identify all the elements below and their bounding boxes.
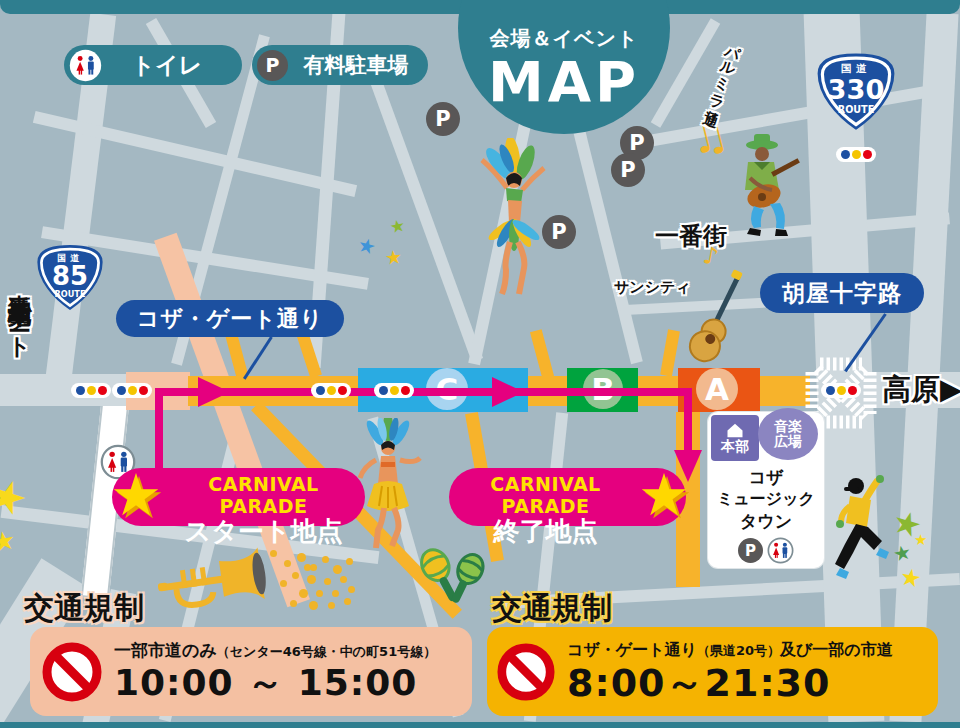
restricted-roads: コザ・ゲート通り [567,640,697,659]
pointer-line [243,336,273,380]
trumpet-illustration [152,544,275,621]
traffic-restriction-heading-left: 交通規制 [24,588,144,629]
koza-gate-street-text: コザ・ゲート通り [137,304,324,334]
hq-label: 本部 [721,438,749,454]
confetti [270,550,277,557]
zone-b-label: B [591,371,615,407]
zone-b-marker: B [583,369,623,409]
route-sign-number: 330 [828,74,885,105]
map-title: MAP [488,52,640,112]
traffic-light-icon [836,147,876,162]
traffic-light-icon [71,383,111,398]
restriction-hours: 10:00 ～ 15:00 [114,662,436,704]
toilet-icon [767,537,794,564]
toilet-icon [69,49,102,82]
traffic-light-icon [374,383,414,398]
traffic-restriction-left: 一部市道のみ（センター46号線・中の町51号線） 10:00 ～ 15:00 [30,627,472,716]
parking-marker: P [426,102,460,136]
music-town-name: コザ ミュージック タウン [708,466,824,532]
zone-a-marker: A [696,368,738,410]
restricted-roads-note: （センター46号線・中の町51号線） [217,644,436,659]
restriction-hours: 8:00～21:30 [567,661,893,705]
gold-street [530,329,554,378]
goya-crossing-text: 胡屋十字路 [782,278,902,309]
legend-toilet-label: トイレ [102,50,232,81]
jumping-dancer-illustration [828,472,910,580]
no-entry-icon [497,643,555,701]
street-label-suncity: サンシティ [614,278,691,297]
star-icon: ★ [638,466,690,524]
street [889,13,958,723]
route-sign-suffix: ROUTE [55,289,86,299]
music-town-name-line3: タウン [708,510,824,532]
arrow-right-icon: ▶ [940,372,960,406]
goya-crossing-label: 胡屋十字路 [760,273,924,313]
zone-c-marker: C [426,368,468,410]
street-label-kadena-gate: 嘉手納基地第二ゲート [5,276,36,516]
restricted-roads-note: （県道20号） [697,643,780,658]
traffic-restriction-left-text: 一部市道のみ（センター46号線・中の町51号線） 10:00 ～ 15:00 [114,640,436,704]
route-330-sign: 国道 330 ROUTE [816,52,896,130]
legend-paid-parking-label: 有料駐車場 [288,51,424,79]
parking-icon: P [738,538,763,563]
star-icon: ★ [356,234,378,258]
music-plaza-badge: 音楽 広場 [758,408,818,460]
hq-badge: 本部 [711,415,759,461]
star-icon: ★ [384,247,403,268]
traffic-restriction-right: コザ・ゲート通り（県道20号）及び一部の市道 8:00～21:30 [487,627,938,716]
parade-title: CARNIVAL PARADE [457,473,634,517]
traffic-restriction-right-text: コザ・ゲート通り（県道20号）及び一部の市道 8:00～21:30 [567,639,893,705]
bottom-band [0,722,960,728]
music-town-name-line1: コザ [708,466,824,488]
music-plaza-line1: 音楽 [774,419,802,434]
traffic-light-icon [311,383,351,398]
route-sign-number: 85 [52,261,88,291]
parade-end-banner: ★ CARNIVAL PARADE 終了地点 [449,468,686,526]
traffic-light-icon [112,383,152,398]
traffic-restriction-heading-right: 交通規制 [492,588,612,629]
parking-letter: P [435,107,450,131]
star-icon: ★ [0,526,17,556]
guitarist-illustration [724,128,816,243]
music-plaza-line2: 広場 [774,434,802,449]
route-sign-suffix: ROUTE [838,104,874,115]
parking-letter: P [745,542,756,560]
gold-street [660,329,680,376]
music-town-name-line2: ミュージック [708,488,824,510]
restricted-roads-tail: 及び一部の市道 [780,640,893,659]
maracas-illustration [410,540,492,620]
parade-start-label: スタート地点 [170,517,357,545]
zone-c-label: C [436,371,459,407]
parade-end-label: 終了地点 [457,517,634,545]
takahara-label: 高原 [882,372,940,406]
samba-dancer-illustration [462,138,557,303]
map-title-subtitle: 会場＆イベント [490,25,639,52]
traffic-light-icon [821,383,861,398]
music-town-icons: P [708,537,824,564]
koza-music-town-card: 本部 音楽 広場 コザ ミュージック タウン P [708,412,824,568]
event-map: C B A P P P P ★ ★ ★ ★ ★ ★ ★ ★ ★ ♫ ♪ [0,0,960,728]
legend-toilet: トイレ [64,45,242,85]
parade-start-banner: ★ CARNIVAL PARADE スタート地点 [112,468,365,526]
house-icon [725,423,745,438]
legend-paid-parking: P 有料駐車場 [252,45,428,85]
takahara-direction: 高原▶ [882,370,960,410]
parking-letter: P [629,131,644,155]
parking-icon: P [257,50,288,81]
parking-marker: P [611,153,645,187]
star-icon: ★ [914,533,927,548]
map-title-circle: 会場＆イベント MAP [458,0,670,134]
no-entry-icon [42,642,102,702]
route-85-sign: 国道 85 ROUTE [36,244,104,310]
zone-a-label: A [705,371,729,407]
restricted-roads: 一部市道のみ [114,640,217,660]
parade-title: CARNIVAL PARADE [170,473,357,517]
parking-letter: P [266,54,280,76]
star-icon: ★ [110,466,162,524]
street-label-ichibangai: 一番街 [655,220,727,252]
star-icon: ★ [388,217,406,237]
parking-letter: P [620,158,635,182]
koza-gate-street-label: コザ・ゲート通り [116,300,344,337]
route-sign-prefix: 国道 [841,62,871,74]
